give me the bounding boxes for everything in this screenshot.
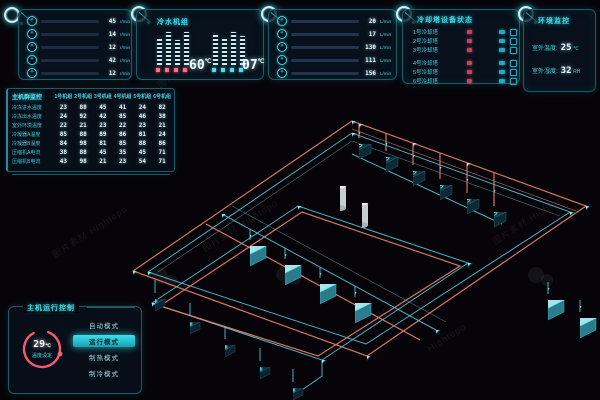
hvac-dashboard: 图片素材 Hightopo 图片素材 Hightopo 图片素材 Hightop… [0, 0, 600, 400]
mode-button-run[interactable]: 运行模式 [73, 335, 135, 347]
mode-button-group: 自动模式 运行模式 制热模式 制冷模式 [73, 319, 135, 383]
fan-icon: ✳ [277, 68, 287, 78]
row-label: 冷凝器B温度 [12, 140, 53, 147]
status-checkbox[interactable] [510, 47, 517, 54]
row-label: 室外环境温度 [12, 122, 53, 129]
title-divider [87, 307, 135, 308]
fault-indicator [467, 30, 472, 34]
status-squares-right [212, 68, 243, 72]
metric-value: 17 [363, 31, 376, 38]
panel-title: 主机运行控制 [23, 303, 79, 313]
corner-slash [139, 12, 153, 24]
svg-text:图片素材 Hightopo: 图片素材 Hightopo [50, 203, 129, 260]
table-row: 冷凝器B温度 849881858886 [12, 139, 172, 148]
row-label: 冷冻进水温度 [12, 104, 53, 111]
tower-label: 1号冷却塔 [413, 28, 455, 36]
run-indicator [499, 30, 505, 34]
metric-value: 130 [363, 44, 376, 51]
status-squares-left [156, 68, 187, 72]
col-header: 6号机组 [152, 93, 172, 100]
table-row: 压缩机B电流 439821235471 [12, 157, 172, 166]
tower-label: 2号冷却塔 [413, 37, 455, 45]
tower-status-row: 6号冷却塔 [413, 77, 517, 85]
svg-text:Hightopo: Hightopo [426, 321, 468, 353]
run-indicator [499, 61, 505, 65]
tower-label: 4号冷却塔 [413, 59, 455, 67]
col-header: 1号机组 [53, 93, 73, 100]
panel-title: 环境监控 [538, 16, 570, 26]
row-label: 冷凝器A温度 [12, 131, 53, 138]
metric-value: 42 [103, 57, 116, 64]
status-checkbox[interactable] [510, 29, 517, 36]
status-checkbox[interactable] [510, 69, 517, 76]
tower-status-row: 4号冷却塔 [413, 59, 517, 67]
metric-unit: r/min [120, 71, 130, 76]
tower-label: 3号冷却塔 [413, 46, 455, 54]
fault-indicator [467, 70, 472, 74]
pump-units-3d[interactable] [145, 294, 303, 400]
row-label: 压缩机A电流 [12, 149, 53, 156]
tower-status-row: 1号冷却塔 [413, 28, 517, 36]
col-header: 4号机组 [113, 93, 133, 100]
table-row: 冷冻进水温度 238845412482 [12, 103, 172, 112]
fan-icon: ✳ [27, 16, 37, 26]
outdoor-humidity: 室外湿度:32 RH [532, 66, 580, 76]
col-header: 3号机组 [93, 93, 113, 100]
col-header: 5号机组 [132, 93, 152, 100]
row-label: 冷冻出水温度 [12, 113, 53, 120]
metric-unit: L/min [380, 45, 391, 50]
fan-icon: ✳ [27, 68, 37, 78]
metric-unit: L/min [380, 19, 391, 24]
metric-unit: r/min [120, 19, 130, 24]
table-row: 压缩机A电流 388845354571 [12, 148, 172, 157]
metric-value: 156 [363, 70, 376, 77]
mode-button-cool[interactable]: 制冷模式 [73, 367, 135, 379]
metric-unit: r/min [120, 32, 130, 37]
metric-unit: r/min [120, 58, 130, 63]
metric-value: 111 [363, 57, 376, 64]
table-title: 主机群监控 [12, 92, 53, 101]
environment-panel: 环境监控 室外温度:25 ℃ 室外湿度:32 RH [523, 9, 596, 92]
run-indicator [499, 70, 505, 74]
status-checkbox[interactable] [510, 60, 517, 67]
pump-metrics-panel: ✳ 45 r/min ✳ 14 r/min ✳ 12 r/min ✳ 42 r/… [18, 9, 132, 80]
metric-value: 14 [103, 31, 116, 38]
table-row: 冷冻出水温度 249242854638 [12, 112, 172, 121]
fan-icon: ✳ [27, 29, 37, 39]
metric-value: 12 [103, 70, 116, 77]
mode-button-heat[interactable]: 制热模式 [73, 351, 135, 363]
fault-indicator [467, 79, 472, 83]
fan-icon: ✳ [277, 29, 287, 39]
run-indicator [499, 48, 505, 52]
supply-temp-value: 60℃ [189, 58, 211, 73]
fault-indicator [467, 39, 472, 43]
tower-label: 5号冷却塔 [413, 68, 455, 76]
tower-status-row: 3号冷却塔 [413, 46, 517, 54]
col-header: 2号机组 [73, 93, 93, 100]
fan-icon: ✳ [277, 16, 287, 26]
cooling-towers-3d[interactable] [347, 138, 506, 227]
panel-title: 冷却塔设备状态 [417, 15, 473, 25]
host-control-panel: 主机运行控制 29℃ 温度设定 自动模式 运行模式 制热模式 制冷模式 [8, 306, 142, 394]
metric-value: 20 [363, 18, 376, 25]
pipe-network [133, 121, 586, 390]
storage-tanks-3d[interactable] [334, 183, 368, 228]
metric-unit: L/min [380, 58, 391, 63]
temp-setpoint-gauge: 29℃ 温度设定 [17, 323, 67, 379]
host-group-table: 主机群监控 1号机组 2号机组 3号机组 4号机组 5号机组 6号机组 冷冻进水… [6, 88, 175, 172]
outdoor-temp: 室外温度:25 ℃ [532, 43, 579, 53]
tower-status-row: 5号冷却塔 [413, 68, 517, 76]
fan-icon: ✳ [277, 42, 287, 52]
metric-unit: r/min [120, 45, 130, 50]
cooling-tower-status-panel: 冷却塔设备状态 1号冷却塔 2号冷却塔 3号冷却塔 4号冷却塔 5号冷却塔 [402, 9, 520, 84]
flow-metrics-panel: ✳ 20 L/min ✳ 17 L/min ✳ 130 L/min ✳ 111 … [268, 9, 397, 80]
fault-indicator [467, 48, 472, 52]
fault-indicator [467, 61, 472, 65]
fan-icon: ✳ [277, 55, 287, 65]
status-checkbox[interactable] [510, 78, 517, 85]
table-row: 冷凝器A温度 858889868124 [12, 130, 172, 139]
gauge-arc [17, 323, 67, 379]
table-header-row: 主机群监控 1号机组 2号机组 3号机组 4号机组 5号机组 6号机组 [12, 92, 172, 101]
equalizer-bars-right [213, 32, 245, 65]
mode-button-auto[interactable]: 自动模式 [73, 319, 135, 331]
return-temp-value: 07℃ [242, 58, 264, 73]
fan-icon: ✳ [27, 55, 37, 65]
tower-label: 6号冷却塔 [413, 77, 455, 85]
tower-status-row: 2号冷却塔 [413, 37, 517, 45]
setpoint-value: 29℃ [17, 339, 67, 350]
metric-unit: L/min [380, 71, 391, 76]
metric-unit: L/min [380, 32, 391, 37]
chilled-water-panel: 冷水机组 60℃ 07℃ [136, 9, 264, 80]
fan-icon: ✳ [27, 42, 37, 52]
row-label: 压缩机B电流 [12, 158, 53, 165]
run-indicator [499, 79, 505, 83]
table-row: 室外环境温度 222123222321 [12, 121, 172, 130]
metric-value: 12 [103, 44, 116, 51]
run-indicator [499, 39, 505, 43]
panel-title: 冷水机组 [157, 17, 189, 27]
equalizer-bars-left [157, 32, 189, 65]
status-checkbox[interactable] [510, 38, 517, 45]
setpoint-label: 温度设定 [17, 352, 67, 359]
metric-value: 45 [103, 18, 116, 25]
